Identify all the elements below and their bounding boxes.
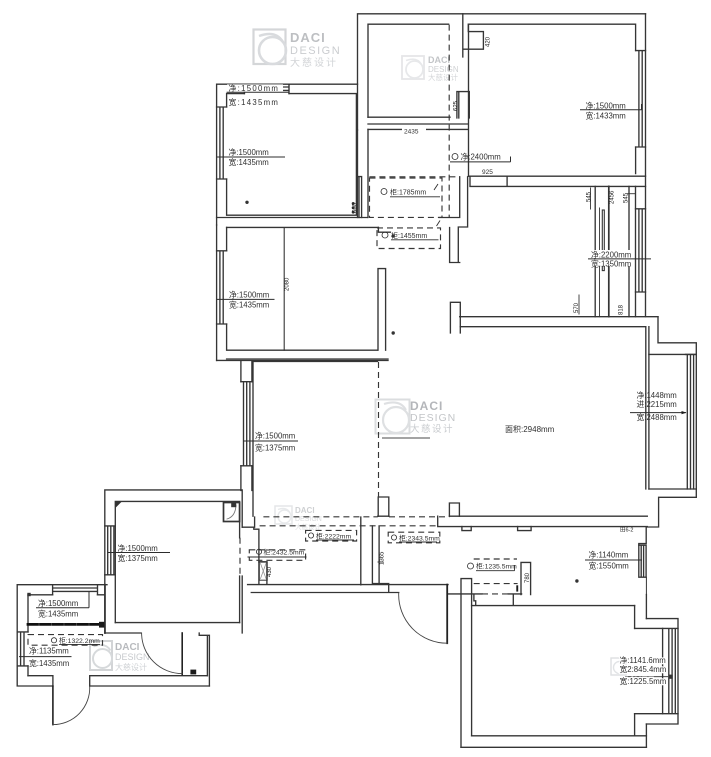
svg-text:780: 780 xyxy=(525,572,531,583)
svg-text:净:1141.6mm: 净:1141.6mm xyxy=(620,655,666,665)
svg-text:宽:1435mm: 宽:1435mm xyxy=(229,157,269,167)
svg-text:625: 625 xyxy=(454,100,460,111)
svg-text:宽:1375mm: 宽:1375mm xyxy=(118,553,158,563)
svg-text:818: 818 xyxy=(619,304,625,315)
svg-text:面积:2948mm: 面积:2948mm xyxy=(505,424,555,434)
svg-text:2435: 2435 xyxy=(404,128,419,135)
svg-text:净:1500mm: 净:1500mm xyxy=(586,101,626,111)
svg-text:净:1500mm: 净:1500mm xyxy=(255,431,295,441)
svg-text:DESIGN: DESIGN xyxy=(410,412,456,424)
svg-text:柜:1785mm: 柜:1785mm xyxy=(390,188,426,197)
svg-text:柜:2432.5mm: 柜:2432.5mm xyxy=(264,548,305,557)
svg-text:2456: 2456 xyxy=(610,190,616,204)
svg-text:宽:1435mm: 宽:1435mm xyxy=(38,609,78,619)
svg-text:宽:2488mm: 宽:2488mm xyxy=(637,412,677,422)
svg-text:宽:1375mm: 宽:1375mm xyxy=(255,443,295,453)
svg-text:宽2:845.4mm: 宽2:845.4mm xyxy=(620,664,667,674)
svg-text:宽:1350mm: 宽:1350mm xyxy=(591,259,631,269)
svg-text:净:1500mm: 净:1500mm xyxy=(229,290,269,300)
svg-text:柜:1455mm: 柜:1455mm xyxy=(391,231,427,240)
svg-text:净:1500mm: 净:1500mm xyxy=(229,83,280,93)
svg-text:柜:1322.2mm: 柜:1322.2mm xyxy=(59,636,100,645)
svg-text:545: 545 xyxy=(587,191,593,202)
svg-text:925: 925 xyxy=(482,169,493,176)
svg-text:柜:1235.5mm: 柜:1235.5mm xyxy=(476,562,517,571)
svg-text:进:2215mm: 进:2215mm xyxy=(637,400,677,409)
svg-text:DACI: DACI xyxy=(410,399,443,413)
svg-text:柜:2343.5mm: 柜:2343.5mm xyxy=(399,534,440,543)
svg-text:净:2400mm: 净:2400mm xyxy=(461,152,501,162)
svg-text:宽:1435mm: 宽:1435mm xyxy=(229,97,280,107)
svg-text:570: 570 xyxy=(574,302,580,313)
svg-text:宽:1225.5mm: 宽:1225.5mm xyxy=(620,676,667,686)
svg-text:600: 600 xyxy=(353,202,359,213)
svg-text:DACI: DACI xyxy=(295,506,315,515)
svg-text:大慈设计: 大慈设计 xyxy=(290,56,338,69)
svg-text:420: 420 xyxy=(486,36,492,47)
svg-text:1365: 1365 xyxy=(380,551,386,565)
svg-text:2080: 2080 xyxy=(285,277,291,291)
svg-text:宽:1550mm: 宽:1550mm xyxy=(589,561,629,571)
svg-text:净:1140mm: 净:1140mm xyxy=(589,550,629,560)
svg-text:宽:1435mm: 宽:1435mm xyxy=(29,658,69,668)
svg-text:净:1448mm: 净:1448mm xyxy=(637,390,677,400)
svg-text:大慈设计: 大慈设计 xyxy=(295,522,322,531)
svg-text:宽:1433mm: 宽:1433mm xyxy=(586,111,626,121)
svg-text:DESIGN: DESIGN xyxy=(290,45,341,57)
svg-text:430: 430 xyxy=(267,566,273,577)
svg-text:净:1500mm: 净:1500mm xyxy=(118,543,158,553)
svg-text:DESIGN: DESIGN xyxy=(115,652,150,662)
svg-text:大慈设计: 大慈设计 xyxy=(115,662,147,672)
svg-text:净:1500mm: 净:1500mm xyxy=(38,598,78,608)
svg-text:宽:1435mm: 宽:1435mm xyxy=(229,300,269,310)
svg-text:净:1500mm: 净:1500mm xyxy=(229,147,269,157)
svg-text:大慈设计: 大慈设计 xyxy=(410,423,454,435)
svg-text:净:1135mm: 净:1135mm xyxy=(29,646,69,656)
svg-text:DACI: DACI xyxy=(290,30,326,45)
svg-text:545: 545 xyxy=(624,192,630,203)
svg-text:DACI: DACI xyxy=(428,55,450,65)
svg-text:田6-2: 田6-2 xyxy=(620,527,633,534)
svg-text:柜:2222mm: 柜:2222mm xyxy=(316,532,351,541)
svg-text:净:2200mm: 净:2200mm xyxy=(591,250,631,260)
svg-text:大慈设计: 大慈设计 xyxy=(428,72,458,82)
